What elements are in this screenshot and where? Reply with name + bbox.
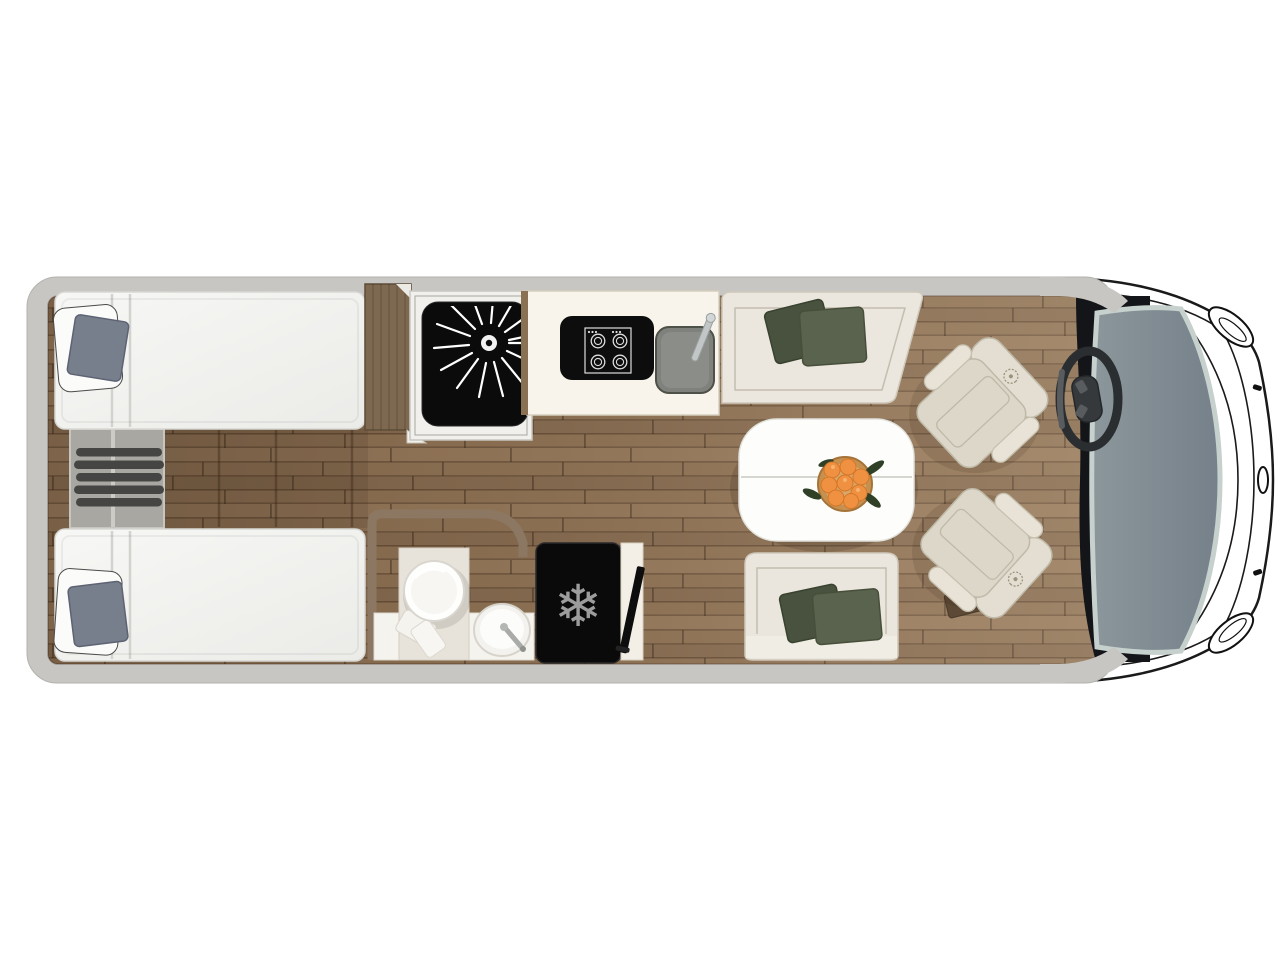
- sofa-pillow: [799, 307, 867, 366]
- sofa-pillow: [812, 588, 882, 645]
- fridge: ❄: [536, 543, 621, 663]
- front-emblem: [1258, 467, 1268, 493]
- dinette-table: [730, 419, 918, 552]
- floorplan-svg: ❄: [0, 0, 1280, 960]
- bed-top: [52, 292, 365, 429]
- sofa-bottom: [745, 553, 898, 660]
- kitchen: [521, 291, 719, 415]
- bed-bottom: [53, 529, 365, 661]
- snowflake-icon: ❄: [554, 572, 603, 640]
- washbasin: [474, 604, 530, 656]
- floorplan-canvas: ❄: [0, 0, 1280, 960]
- sofa-top: [722, 292, 922, 403]
- counter-wood-edge: [521, 291, 528, 415]
- bed-cushion: [68, 581, 129, 647]
- bed-ladder: [70, 429, 164, 528]
- hob: [560, 316, 654, 380]
- bed-cushion: [67, 314, 130, 382]
- steps-shading: [164, 429, 368, 528]
